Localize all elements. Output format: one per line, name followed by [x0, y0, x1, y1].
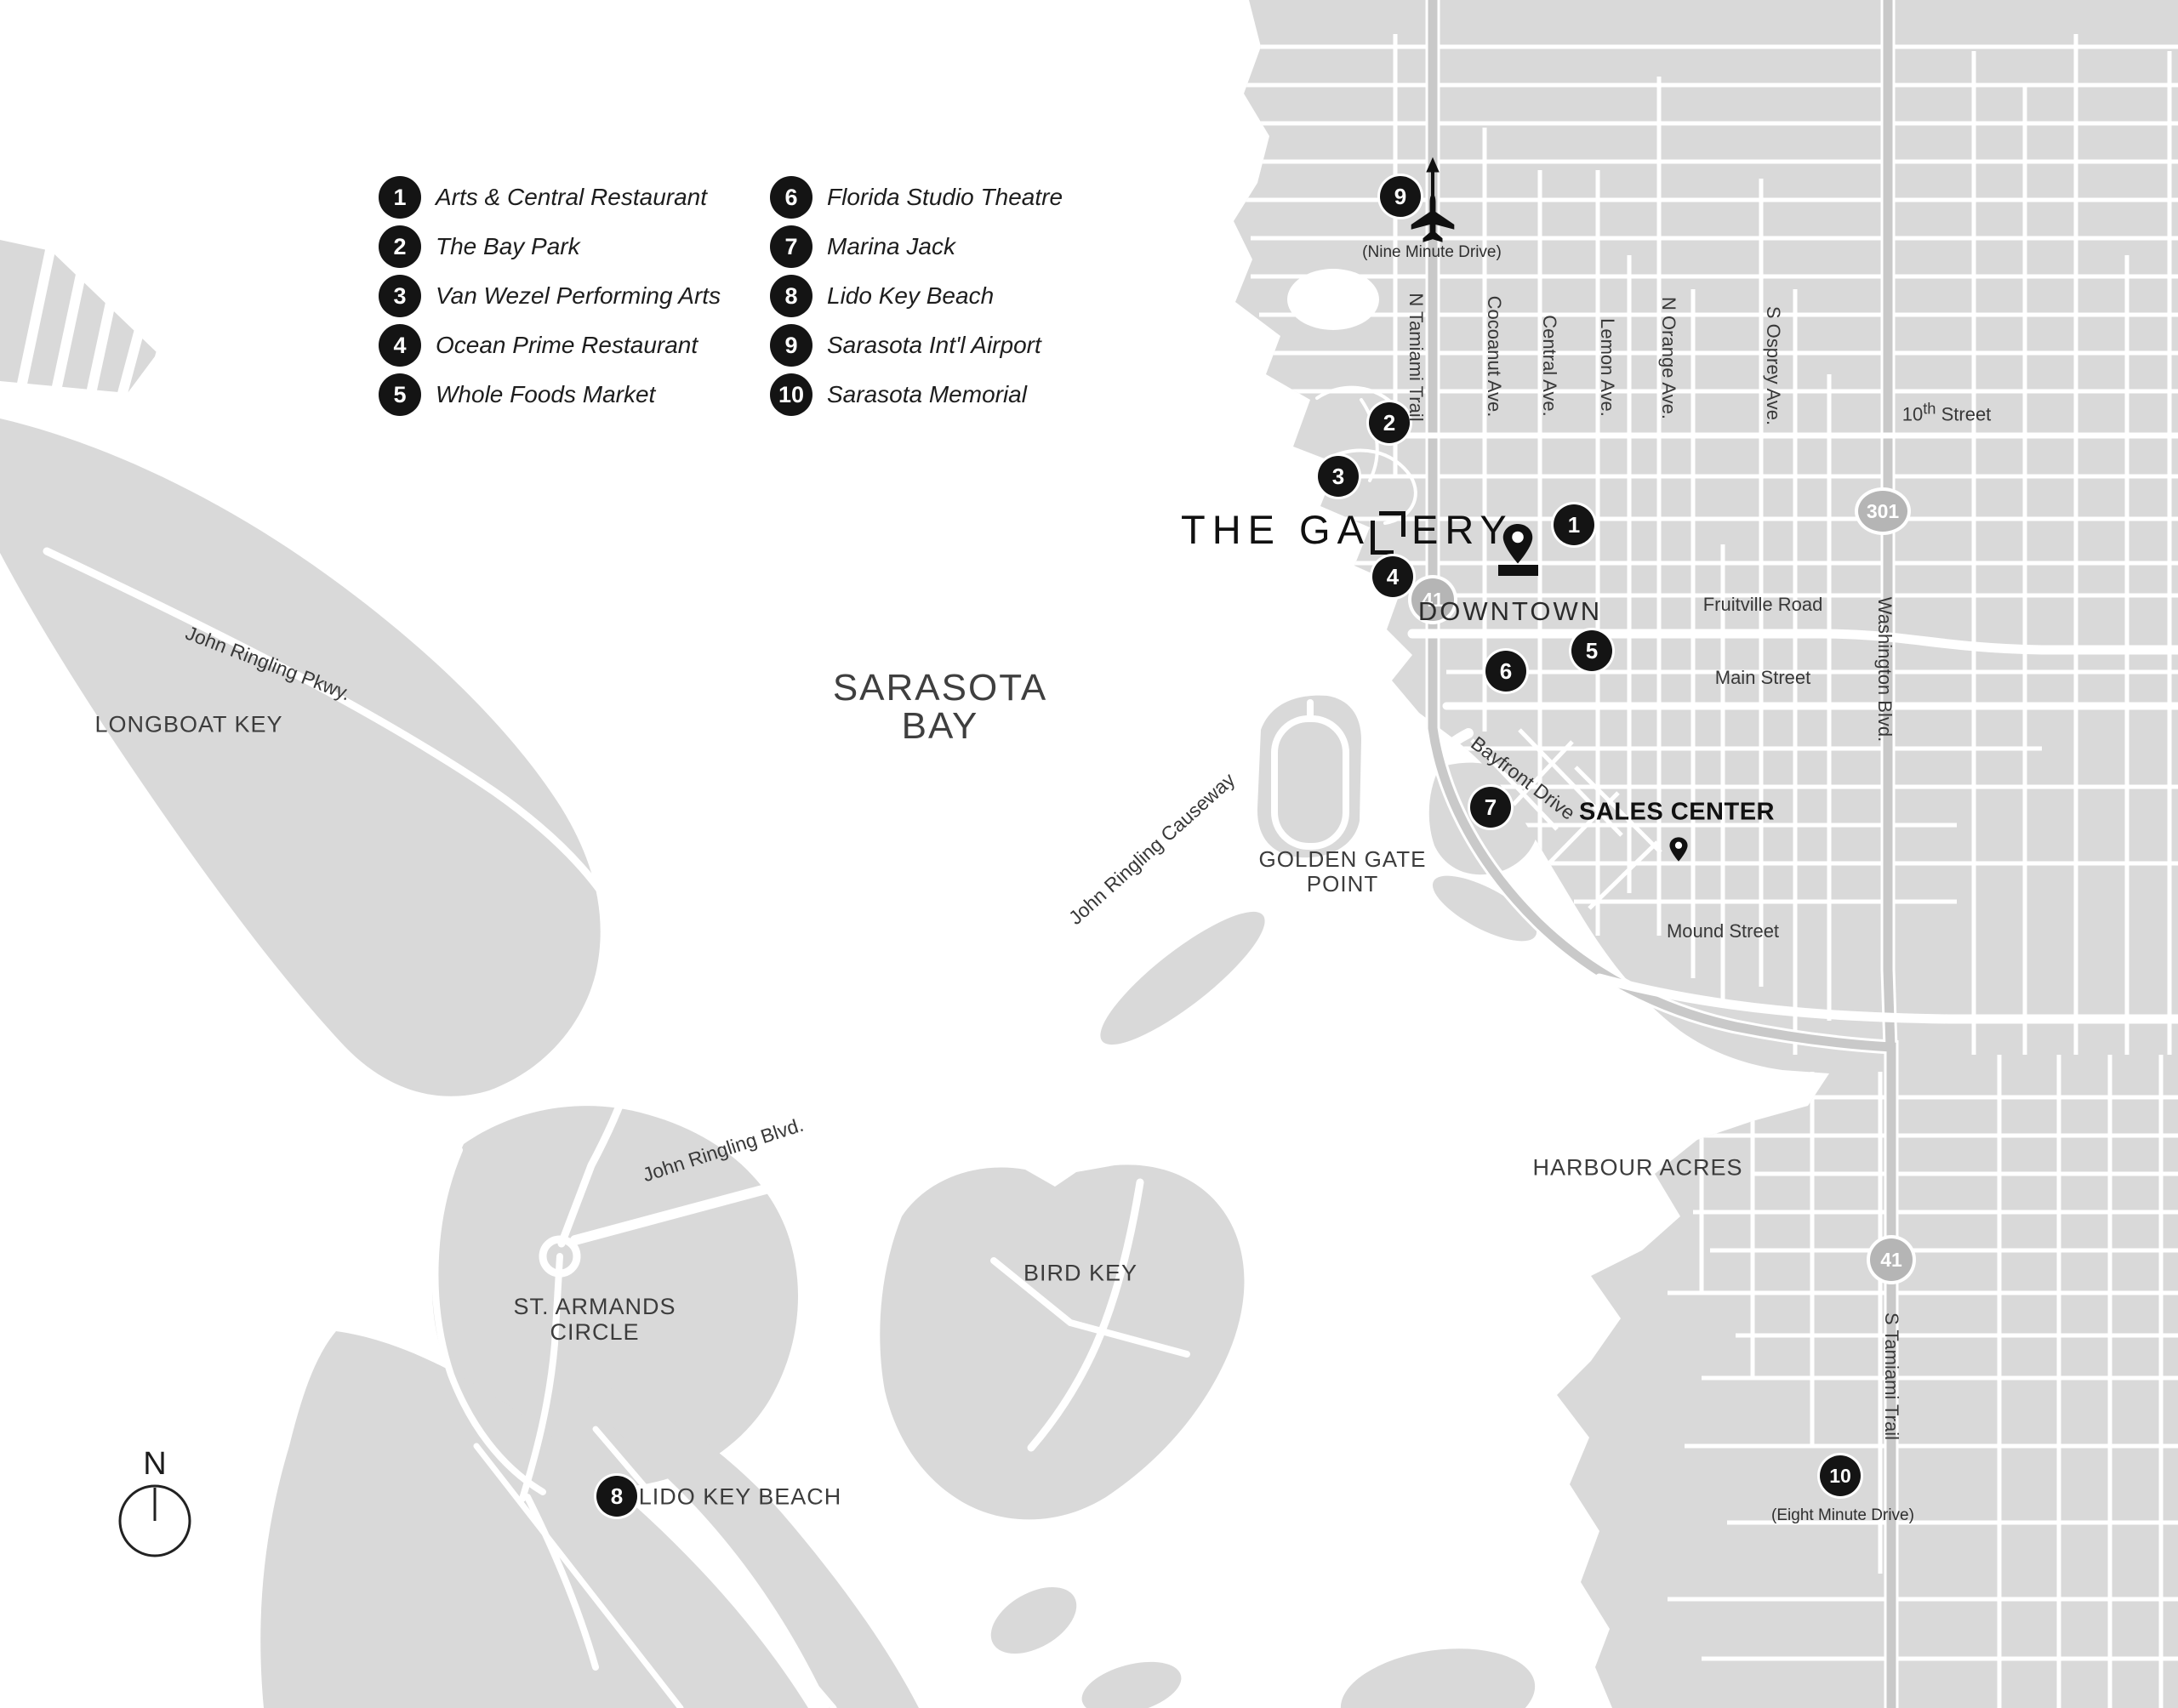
legend-item-label: Sarasota Memorial	[827, 381, 1027, 408]
legend-item-label: Arts & Central Restaurant	[436, 184, 707, 211]
map-marker-3: 3	[1318, 456, 1359, 497]
label-cocoanut-ave: Cocoanut Ave.	[1483, 296, 1505, 418]
legend-marker-number: 8	[770, 275, 812, 317]
map-marker-5: 5	[1571, 630, 1612, 671]
logo-bracket-high-icon	[1379, 511, 1405, 537]
gallery-pin-underline	[1498, 565, 1538, 576]
label-10th-street: 10th Street	[1902, 399, 1992, 425]
legend-item-label: Van Wezel Performing Arts	[436, 282, 721, 310]
map-marker-9: 9	[1380, 176, 1421, 217]
legend-item: 10 Sarasota Memorial	[770, 373, 1027, 416]
logo-text-right: ERY	[1411, 509, 1514, 551]
legend-item-label: The Bay Park	[436, 233, 580, 260]
label-bird-key: BIRD KEY	[1023, 1261, 1137, 1287]
legend-item: 2 The Bay Park	[379, 225, 580, 268]
legend-item: 7 Marina Jack	[770, 225, 955, 268]
label-s-osprey-ave: S Osprey Ave.	[1762, 306, 1784, 425]
map-marker-8: 8	[596, 1476, 637, 1517]
label-harbour-acres: HARBOUR ACRES	[1532, 1155, 1742, 1181]
compass-north-label: N	[117, 1446, 193, 1483]
label-lemon-ave: Lemon Ave.	[1596, 318, 1618, 417]
legend-marker-number: 6	[770, 176, 812, 219]
legend-item-label: Marina Jack	[827, 233, 955, 260]
legend-marker-number: 1	[379, 176, 421, 219]
legend-item-label: Whole Foods Market	[436, 381, 655, 408]
compass-dial-icon	[117, 1483, 193, 1559]
label-s-tamiami-trail: S Tamiami Trail	[1880, 1312, 1902, 1440]
map-marker-6: 6	[1485, 651, 1526, 692]
label-golden-gate-point: GOLDEN GATE POINT	[1259, 847, 1427, 897]
legend-item: 1 Arts & Central Restaurant	[379, 176, 707, 219]
legend-item-label: Florida Studio Theatre	[827, 184, 1063, 211]
label-main-street: Main Street	[1715, 667, 1811, 689]
map-marker-10: 10	[1820, 1455, 1861, 1496]
label-downtown: DOWNTOWN	[1418, 596, 1602, 627]
label-mound-street: Mound Street	[1667, 920, 1779, 942]
legend-marker-number: 7	[770, 225, 812, 268]
route-shield-41-south: 41	[1870, 1238, 1913, 1281]
label-st-armands-circle: ST. ARMANDS CIRCLE	[513, 1294, 676, 1345]
map-marker-7: 7	[1470, 787, 1511, 828]
legend-marker-number: 10	[770, 373, 812, 416]
map-canvas	[0, 0, 2178, 1708]
map-marker-1: 1	[1554, 504, 1594, 545]
legend-marker-number: 9	[770, 324, 812, 367]
label-longboat-key: LONGBOAT KEY	[94, 712, 282, 738]
route-shield-301: 301	[1858, 491, 1907, 532]
label-central-ave: Central Ave.	[1538, 315, 1560, 416]
logo-text-left: THE GA	[1181, 509, 1371, 551]
note-eight-minute-drive: (Eight Minute Drive)	[1771, 1506, 1914, 1525]
map-marker-2: 2	[1369, 402, 1410, 443]
legend-item-label: Ocean Prime Restaurant	[436, 332, 698, 359]
legend-item: 9 Sarasota Int'l Airport	[770, 324, 1041, 367]
label-lido-key-beach: LIDO KEY BEACH	[639, 1484, 842, 1511]
map-page: 1 Arts & Central Restaurant 2 The Bay Pa…	[0, 0, 2178, 1708]
legend-item: 8 Lido Key Beach	[770, 275, 994, 317]
legend-marker-number: 4	[379, 324, 421, 367]
label-n-orange-ave: N Orange Ave.	[1657, 297, 1679, 419]
legend-marker-number: 3	[379, 275, 421, 317]
label-sales-center: SALES CENTER	[1579, 799, 1775, 827]
label-fruitville-road: Fruitville Road	[1703, 594, 1823, 616]
legend-item-label: Lido Key Beach	[827, 282, 994, 310]
map-marker-4: 4	[1372, 556, 1413, 597]
legend-item: 6 Florida Studio Theatre	[770, 176, 1063, 219]
legend-item-label: Sarasota Int'l Airport	[827, 332, 1041, 359]
legend-item: 3 Van Wezel Performing Arts	[379, 275, 721, 317]
sales-center-pin-icon	[1669, 837, 1688, 863]
the-gallery-logo: THE GA ERY	[1181, 509, 1514, 555]
note-nine-minute-drive: (Nine Minute Drive)	[1362, 243, 1502, 262]
legend-marker-number: 5	[379, 373, 421, 416]
legend-item: 4 Ocean Prime Restaurant	[379, 324, 698, 367]
label-washington-blvd: Washington Blvd.	[1873, 597, 1896, 742]
compass: N	[117, 1446, 193, 1563]
label-sarasota-bay: SARASOTA BAY	[833, 669, 1047, 746]
legend-marker-number: 2	[379, 225, 421, 268]
label-n-tamiami-trail: N Tamiami Trail	[1405, 293, 1427, 421]
gallery-location-pin-icon	[1502, 524, 1533, 565]
legend-item: 5 Whole Foods Market	[379, 373, 655, 416]
